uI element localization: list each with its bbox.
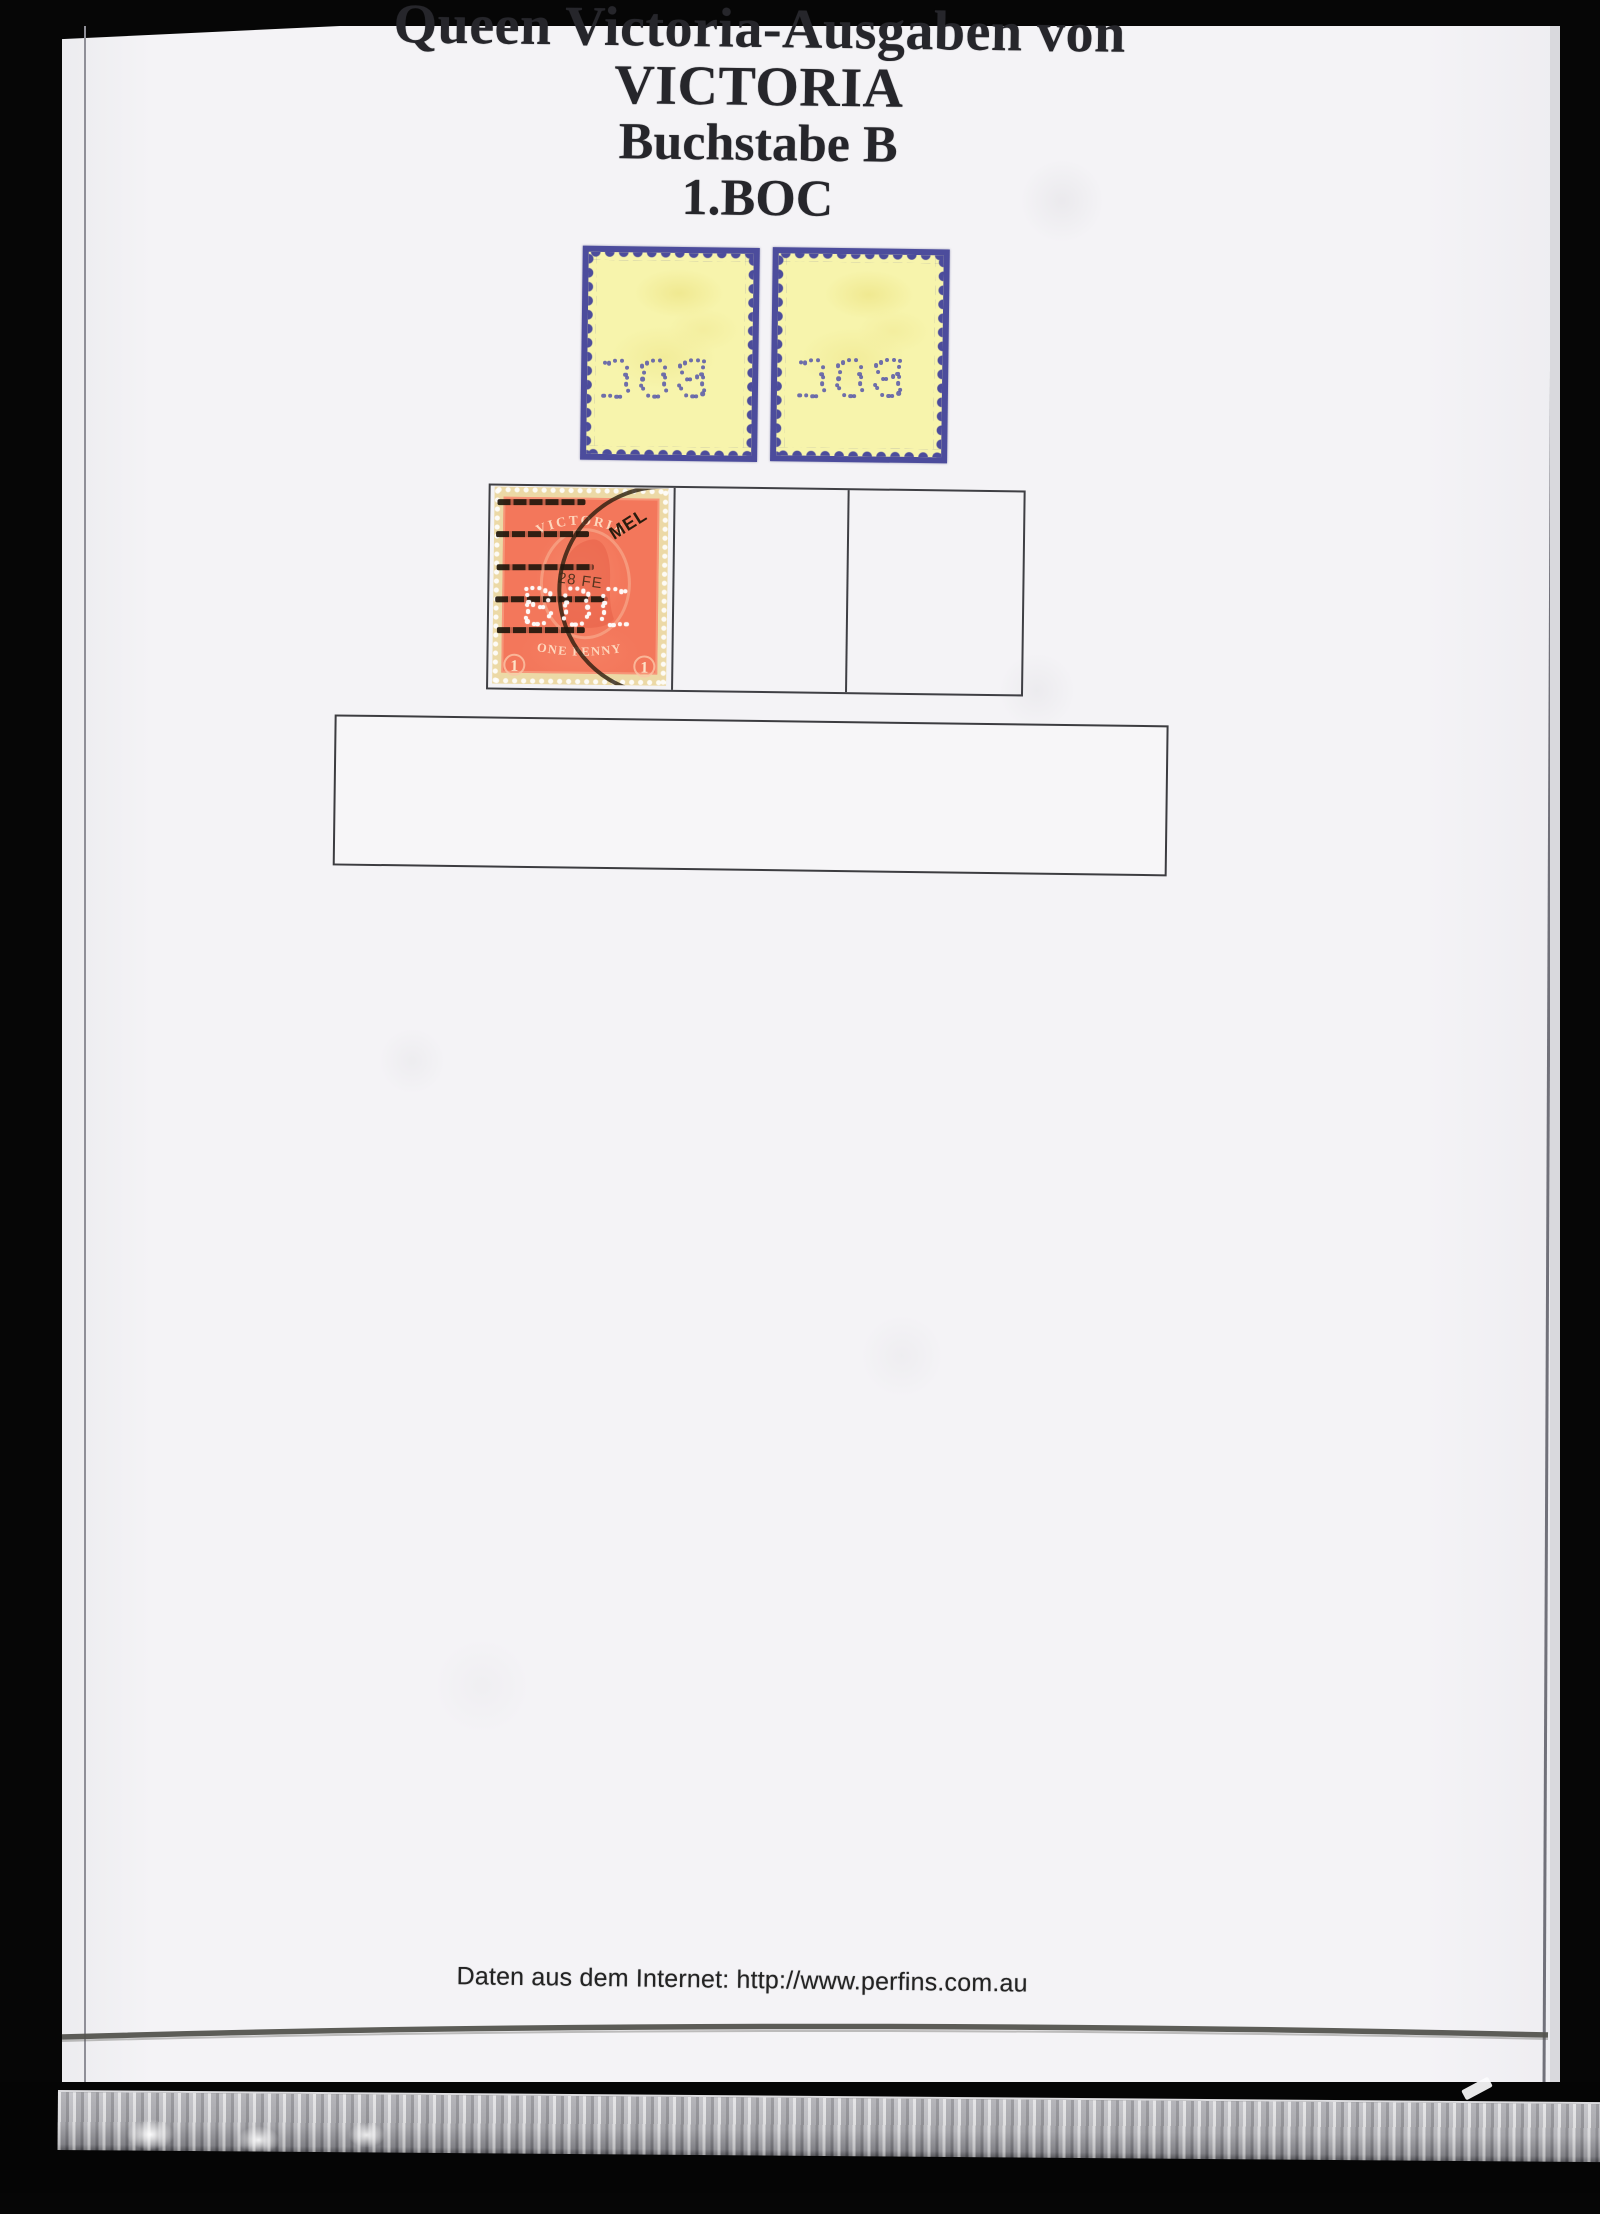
perfin-letters-boc <box>797 359 901 399</box>
yellow-perfin-stamp-left <box>580 246 760 462</box>
postmark-bar <box>497 564 594 570</box>
table-divider <box>671 488 676 690</box>
postmark-bar <box>497 627 585 633</box>
page-content: Queen Victoria-Ausgaben von VICTORIA Buc… <box>0 0 1600 2214</box>
page-title-block: Queen Victoria-Ausgaben von VICTORIA Buc… <box>257 0 1260 232</box>
perforation-edge <box>586 446 751 456</box>
perfin-letters-boc <box>525 587 630 628</box>
table-divider <box>845 490 850 692</box>
perfin-letters-boc <box>601 359 705 399</box>
title-line-1: Queen Victoria-Ausgaben von VICTORIA <box>259 0 1260 122</box>
postmark-bar <box>497 499 585 505</box>
perforation-edge <box>776 447 941 457</box>
postmark-city-text: MEL <box>605 505 650 544</box>
orange-victoria-stamp: VICTORIA ONE PENNY 1 1 MEL 28 FE <box>492 487 669 686</box>
stamp-paper <box>586 252 754 456</box>
perforation-edge <box>933 255 944 457</box>
stamp-paper <box>776 253 944 457</box>
stamp-artwork: VICTORIA ONE PENNY 1 1 MEL 28 FE <box>492 487 669 686</box>
footer-source-text: Daten aus dem Internet: http://www.perfi… <box>242 1959 1242 2001</box>
yellow-perfin-stamp-right <box>770 247 950 463</box>
corner-numeral-left: 1 <box>510 658 518 675</box>
sleeve-crinkled-edge <box>58 2090 1600 2162</box>
postmark-bar <box>496 531 589 537</box>
perforation-edge <box>743 254 754 456</box>
corner-numeral-right: 1 <box>640 659 648 676</box>
empty-description-box <box>333 714 1169 876</box>
